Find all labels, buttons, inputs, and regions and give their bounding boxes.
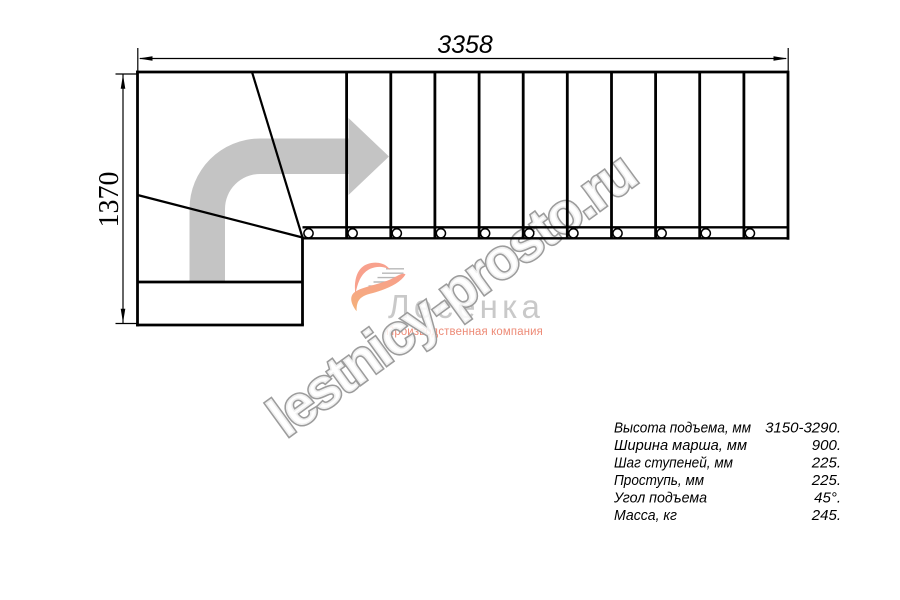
svg-text:1370: 1370: [94, 172, 125, 228]
svg-text:225.: 225.: [811, 455, 841, 472]
svg-text:225.: 225.: [811, 472, 841, 489]
svg-text:Проступь, мм: Проступь, мм: [614, 472, 704, 489]
svg-text:Масса, кг: Масса, кг: [614, 507, 678, 524]
svg-text:Угол подъема: Угол подъема: [613, 490, 707, 507]
svg-text:Ширина марша, мм: Ширина марша, мм: [614, 437, 747, 454]
svg-text:3358: 3358: [437, 31, 493, 59]
svg-text:Шаг ступеней, мм: Шаг ступеней, мм: [614, 455, 733, 472]
svg-text:900.: 900.: [812, 437, 841, 454]
svg-text:45°.: 45°.: [814, 490, 841, 507]
svg-text:3150-3290.: 3150-3290.: [765, 420, 841, 437]
svg-text:lestnicy-prosto.ru: lestnicy-prosto.ru: [256, 141, 647, 449]
svg-text:245.: 245.: [811, 507, 841, 524]
svg-text:Высота подъема, мм: Высота подъема, мм: [614, 420, 751, 437]
